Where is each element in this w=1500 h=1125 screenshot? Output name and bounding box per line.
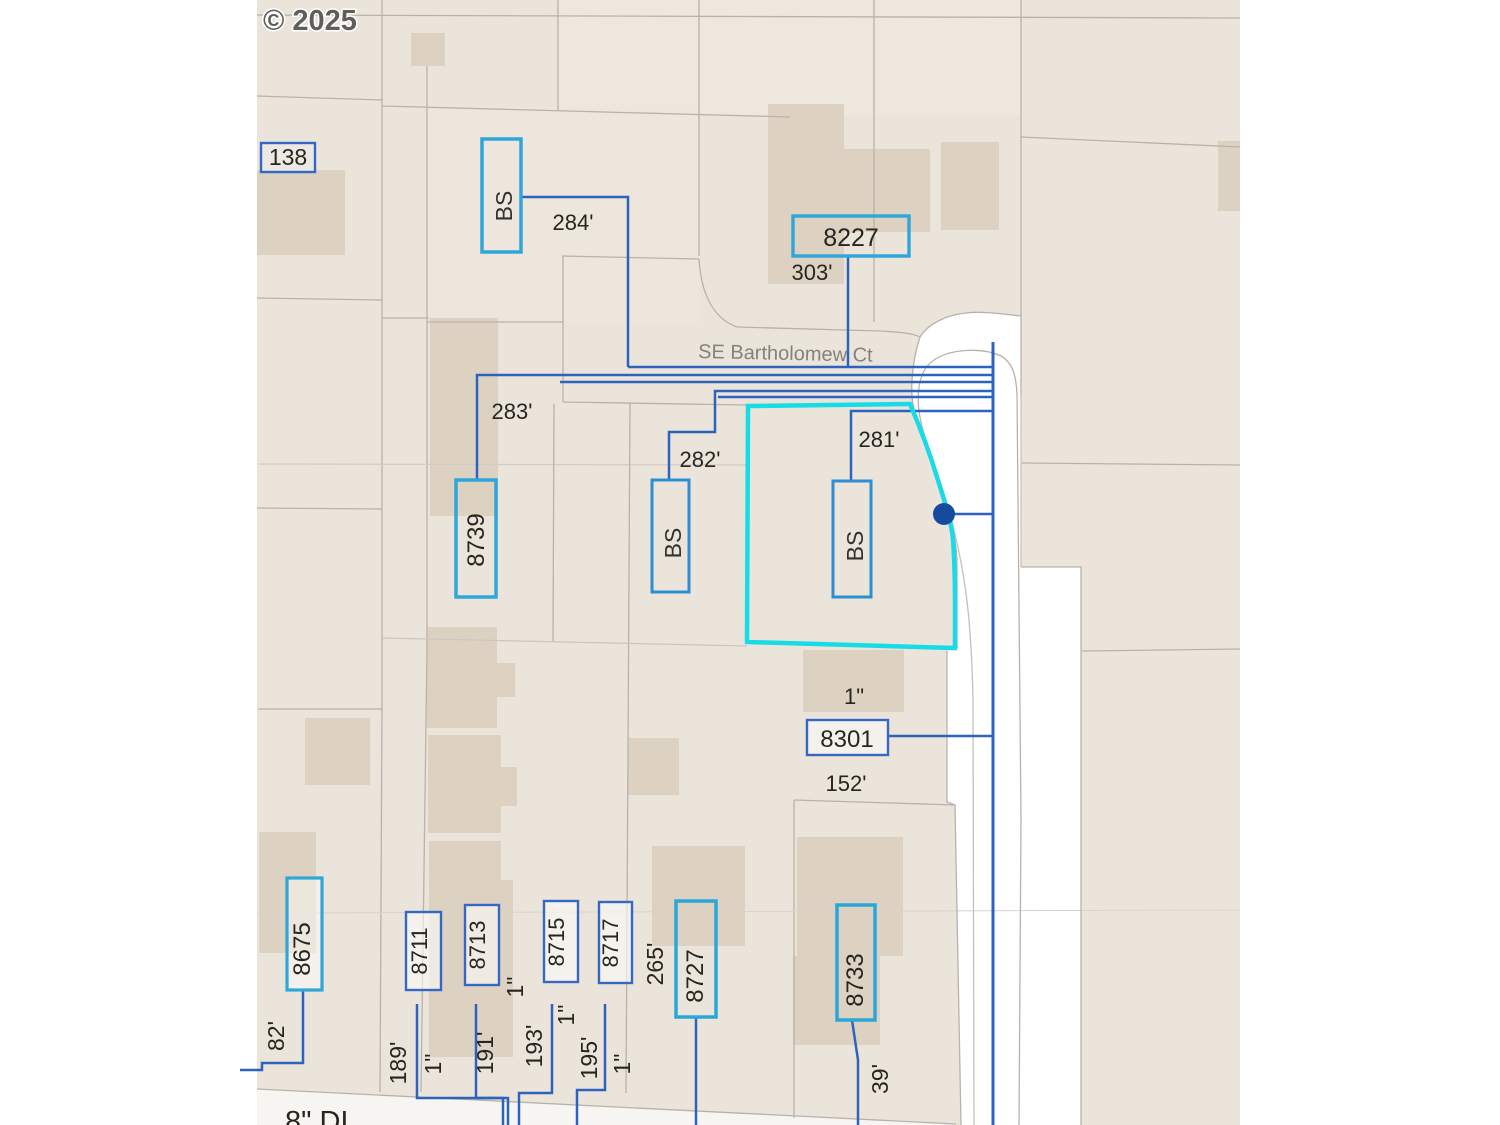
svg-text:BS: BS <box>842 531 868 562</box>
svg-text:138: 138 <box>269 144 307 170</box>
svg-text:© 2025: © 2025 <box>263 5 357 37</box>
svg-text:8" DI: 8" DI <box>285 1106 348 1125</box>
svg-text:39': 39' <box>867 1064 893 1094</box>
svg-text:1": 1" <box>420 1054 446 1075</box>
svg-text:1": 1" <box>844 684 864 709</box>
svg-text:265': 265' <box>642 943 668 986</box>
svg-text:8727: 8727 <box>682 949 709 1002</box>
svg-text:193': 193' <box>521 1025 547 1068</box>
svg-text:282': 282' <box>680 447 721 472</box>
svg-text:189': 189' <box>385 1042 411 1085</box>
svg-text:8713: 8713 <box>465 921 490 970</box>
svg-text:8227: 8227 <box>823 224 879 252</box>
svg-text:152': 152' <box>826 771 867 796</box>
svg-text:1": 1" <box>609 1054 635 1075</box>
svg-text:BS: BS <box>660 528 686 559</box>
svg-text:1": 1" <box>502 977 528 998</box>
svg-text:8739: 8739 <box>463 513 490 566</box>
svg-text:1": 1" <box>553 1005 579 1026</box>
svg-text:8715: 8715 <box>544 918 569 967</box>
svg-text:82': 82' <box>263 1021 289 1051</box>
svg-text:8733: 8733 <box>842 953 869 1006</box>
svg-text:SE Bartholomew Ct: SE Bartholomew Ct <box>698 341 873 367</box>
svg-text:281': 281' <box>859 427 900 452</box>
svg-text:303': 303' <box>792 260 833 285</box>
svg-text:8711: 8711 <box>407 927 432 974</box>
svg-text:195': 195' <box>576 1037 602 1080</box>
svg-text:8717: 8717 <box>598 919 623 968</box>
svg-text:283': 283' <box>492 399 533 424</box>
svg-text:284': 284' <box>553 210 594 235</box>
svg-text:BS: BS <box>491 191 517 222</box>
svg-text:191': 191' <box>472 1032 498 1075</box>
svg-text:8675: 8675 <box>289 922 316 975</box>
svg-text:8301: 8301 <box>820 726 873 753</box>
